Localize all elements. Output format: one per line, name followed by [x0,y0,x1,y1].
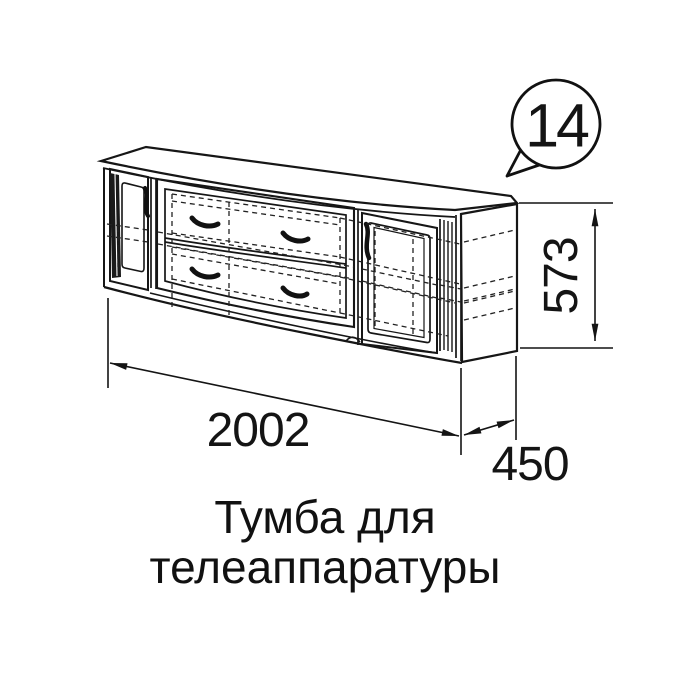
lower-drawer-handle-right [283,288,307,296]
caption-line-1: Тумба для [150,492,501,542]
cabinet-drawing [101,147,517,363]
product-caption: Тумба для телеаппаратуры [150,492,501,592]
right-door-handle [366,224,369,258]
callout-number: 14 [525,96,587,157]
caption-line-2: телеаппаратуры [150,542,501,592]
drawer-section [157,179,354,327]
fluting-lines [444,220,452,352]
left-door-handle [145,188,148,216]
lower-drawer-handle-left [192,269,218,277]
catalog-page: 14 2002 450 573 Тумба для телеаппаратуры [0,0,700,700]
dimension-depth-value: 450 [491,441,568,489]
cabinet-top [101,147,517,217]
dimension-width-value: 2002 [207,407,310,455]
upper-drawer-handle-right [283,233,308,241]
tv-stand-diagram [0,0,700,700]
cabinet-right-side [461,204,517,362]
left-door [110,169,148,290]
hidden-lines [107,194,515,337]
upper-drawer-handle-left [192,218,218,226]
dimension-depth-450 [464,356,516,440]
dimension-height-value: 573 [538,237,586,314]
